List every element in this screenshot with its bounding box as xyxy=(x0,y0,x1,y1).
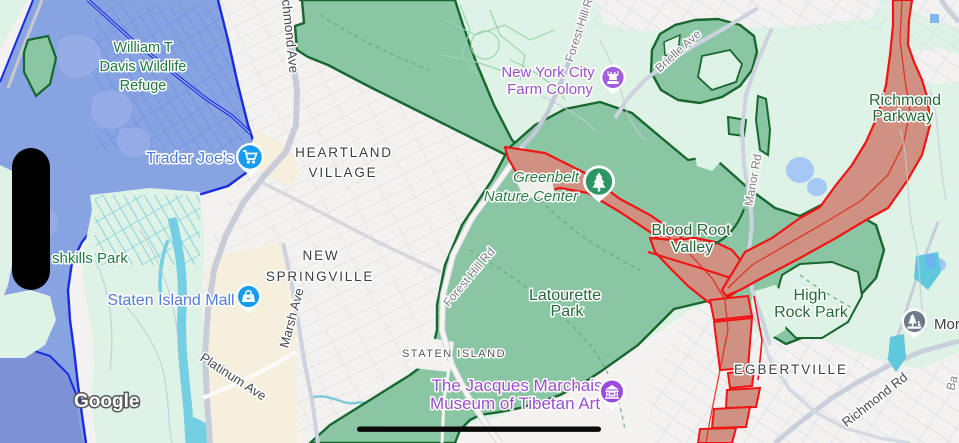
svg-text:New York City: New York City xyxy=(501,64,595,81)
svg-text:VILLAGE: VILLAGE xyxy=(309,165,378,180)
svg-text:Mor: Mor xyxy=(934,316,959,333)
svg-text:STATEN ISLAND: STATEN ISLAND xyxy=(402,348,506,360)
svg-text:SPRINGVILLE: SPRINGVILLE xyxy=(266,269,374,284)
svg-text:Parkway: Parkway xyxy=(872,108,933,125)
svg-text:NEW: NEW xyxy=(303,248,340,263)
svg-text:Farm Colony: Farm Colony xyxy=(507,81,593,98)
svg-text:Nature Center: Nature Center xyxy=(484,188,579,205)
svg-text:Valley: Valley xyxy=(671,239,713,256)
svg-text:Richmond: Richmond xyxy=(869,92,941,109)
svg-text:William T: William T xyxy=(113,40,172,56)
svg-text:HEARTLAND: HEARTLAND xyxy=(295,145,393,160)
svg-text:Museum of Tibetan Art: Museum of Tibetan Art xyxy=(430,394,600,413)
svg-text:Refuge: Refuge xyxy=(120,78,167,94)
svg-text:shkills Park: shkills Park xyxy=(52,250,128,267)
svg-text:Rock Park: Rock Park xyxy=(774,304,849,321)
svg-text:Staten Island Mall: Staten Island Mall xyxy=(107,292,234,309)
svg-text:Google: Google xyxy=(74,391,139,412)
svg-text:Trader Joe's: Trader Joe's xyxy=(146,150,234,167)
svg-text:Park: Park xyxy=(551,303,585,320)
svg-text:Greenbelt: Greenbelt xyxy=(513,169,580,186)
svg-text:High: High xyxy=(794,287,827,304)
svg-text:Latourette: Latourette xyxy=(529,287,601,304)
svg-text:EGBERTVILLE: EGBERTVILLE xyxy=(734,362,848,377)
svg-text:Blood Root: Blood Root xyxy=(651,222,731,239)
svg-text:The Jacques Marchais: The Jacques Marchais xyxy=(431,376,602,395)
svg-text:Davis Wildlife: Davis Wildlife xyxy=(99,59,186,75)
